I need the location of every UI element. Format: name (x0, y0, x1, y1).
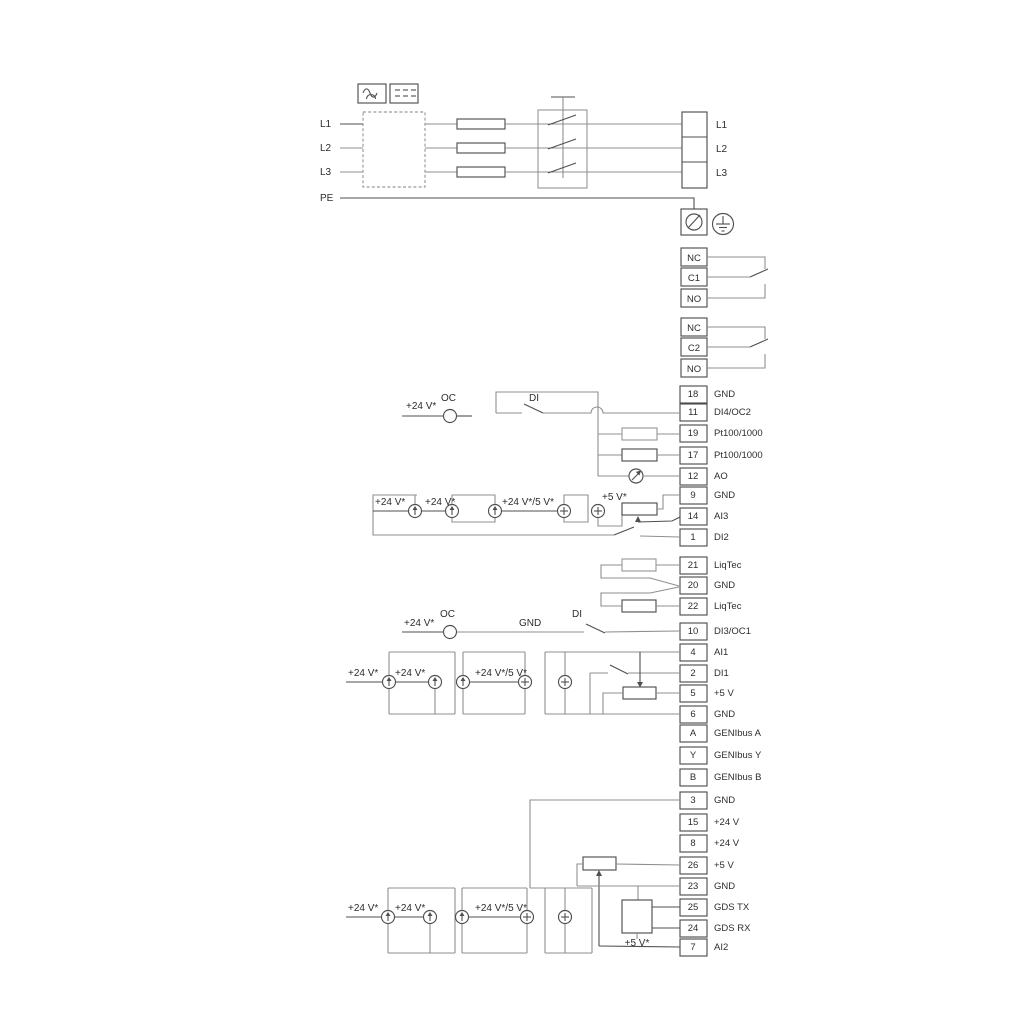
terminal-row: 20 GND (680, 577, 735, 594)
relay-terminal-label: NC (687, 253, 701, 264)
terminal-label: +24 V (714, 838, 740, 849)
di4-oc-branch: +24 V* OC (402, 393, 472, 423)
terminal-number: 2 (690, 668, 695, 679)
terminal-row: 23 GND (680, 878, 735, 895)
terminal-number: 1 (690, 532, 695, 543)
open-collector-icon (444, 410, 457, 423)
terminal-row: 25 GDS TX (680, 899, 750, 916)
relay-1: NC C1 NO (681, 248, 768, 307)
current-source-icon (456, 911, 469, 924)
voltage-label: +24 V*/5 V* (502, 497, 554, 508)
power-line-label: L1 (320, 119, 332, 130)
terminal-row: A GENIbus A (680, 725, 762, 742)
current-source-icon (429, 676, 442, 689)
terminal-number: 9 (690, 490, 695, 501)
terminal-label: +24 V (714, 817, 740, 828)
terminal-label: AI1 (714, 647, 728, 658)
di-label: DI (529, 393, 539, 404)
voltage-label: +24 V* (406, 401, 436, 412)
rcd-pulsating-dc-symbol (358, 84, 386, 103)
terminal-number: B (690, 772, 696, 783)
terminal-strip-io1: 18 GND 11 DI4/OC2 19 Pt100/1000 17 Pt100… (680, 386, 763, 546)
terminal-row: 15 +24 V (680, 814, 740, 831)
earth-icon (713, 214, 734, 235)
terminal-strip-io2: 10 DI3/OC1 4 AI1 2 DI1 5 +5 V 6 GND A GE… (680, 623, 762, 786)
terminal-number: 12 (688, 471, 699, 482)
current-source-icon (382, 911, 395, 924)
di-label: DI (572, 609, 582, 620)
terminal-row: Y GENIbus Y (680, 747, 762, 764)
current-source-icon (383, 676, 396, 689)
terminal-number: 25 (688, 902, 699, 913)
input-filter-box (363, 112, 425, 187)
wire (616, 864, 680, 865)
terminal-row: 26 +5 V (680, 857, 734, 874)
gnd-label: GND (519, 618, 541, 629)
power-line-label: L3 (320, 167, 332, 178)
wire (530, 800, 680, 888)
current-source-icon (424, 911, 437, 924)
wire (452, 518, 495, 522)
wire (603, 693, 623, 714)
terminal-row: 24 GDS RX (680, 920, 751, 937)
terminal-row: 7 AI2 (680, 939, 728, 956)
voltage-label: +5 V* (602, 492, 627, 503)
voltage-label: +24 V* (395, 903, 425, 914)
terminal-row: 14 AI3 (680, 508, 728, 525)
terminal-number: A (690, 728, 697, 739)
terminal-row: 6 GND (680, 706, 735, 723)
terminal-number: 8 (690, 838, 695, 849)
terminal-label: LiqTec (714, 560, 742, 571)
oc-label: OC (441, 393, 456, 404)
voltage-label: +24 V* (348, 668, 378, 679)
terminal-label: GENIbus A (714, 728, 762, 739)
fuse-symbol (457, 167, 505, 177)
resistor-symbol (622, 559, 656, 571)
terminal-label: AI3 (714, 511, 728, 522)
resistor-symbol (622, 428, 657, 440)
terminal-number: 23 (688, 881, 699, 892)
ai3-sensor-group: +24 V* +24 V* +24 V*/5 V* +5 V* (373, 492, 680, 537)
terminal-label: AI2 (714, 942, 728, 953)
current-source-icon (559, 676, 572, 689)
terminal-number: 14 (688, 511, 699, 522)
terminal-row: 17 Pt100/1000 (680, 447, 763, 464)
pt100-sensors (598, 428, 680, 461)
terminal-label: GENIbus B (714, 772, 762, 783)
terminal-number: 6 (690, 709, 695, 720)
terminal-label: GND (714, 709, 735, 720)
relay-contact-symbol (707, 327, 768, 368)
terminal-label: Pt100/1000 (714, 450, 763, 461)
terminal-number: 3 (690, 795, 695, 806)
voltage-label: +24 V* (375, 497, 405, 508)
current-source-icon (457, 676, 470, 689)
terminal-number: 19 (688, 428, 699, 439)
current-source-icon (446, 505, 459, 518)
wire (452, 495, 495, 504)
wiring-diagram: L1 L2 L3 PE (0, 0, 1024, 1024)
terminal-label: DI1 (714, 668, 729, 679)
terminal-number: 10 (688, 626, 699, 637)
relay-2: NC C2 NO (681, 318, 768, 377)
current-source-icon (559, 911, 572, 924)
current-source-icon (489, 505, 502, 518)
terminal-row: 4 AI1 (680, 644, 728, 661)
terminal-label: GND (714, 389, 735, 400)
terminal-row: 11 DI4/OC2 (680, 404, 751, 421)
current-source-icon (409, 505, 422, 518)
terminal-label: L1 (716, 120, 728, 131)
pe-wire (340, 198, 694, 209)
current-source-icon (519, 676, 532, 689)
terminal-number: 18 (688, 389, 699, 400)
terminal-label: AO (714, 471, 728, 482)
ai1-sensor-group: +24 V* +24 V* +24 V*/5 V* (346, 652, 680, 714)
gds-module-box (622, 900, 652, 933)
relay-terminal-label: NC (687, 323, 701, 334)
wire (577, 864, 583, 886)
current-source-icon (521, 911, 534, 924)
terminal-label: L2 (716, 144, 728, 155)
terminal-row: B GENIbus B (680, 769, 762, 786)
terminal-label: +5 V (714, 688, 734, 699)
terminal-number: 26 (688, 860, 699, 871)
pe-ground (340, 198, 734, 235)
terminal-number: 4 (690, 647, 695, 658)
terminal-number: 22 (688, 601, 699, 612)
terminal-row: 19 Pt100/1000 (680, 425, 763, 442)
potentiometer-symbol (583, 857, 616, 870)
terminal-block (682, 112, 707, 188)
ai2-sensor-group: +24 V* +24 V* +24 V*/5 V* (346, 800, 680, 953)
terminal-number: 17 (688, 450, 699, 461)
power-section: L1 L2 L3 PE (320, 84, 734, 235)
voltage-label: +24 V*/5 V* (475, 903, 527, 914)
voltage-label: +24 V*/5 V* (475, 668, 527, 679)
terminal-row: 2 DI1 (680, 665, 729, 682)
ai1-potentiometer (603, 652, 680, 714)
switch-blade (614, 527, 634, 535)
voltage-label: +24 V* (348, 903, 378, 914)
terminal-number: 24 (688, 923, 699, 934)
wiring-diagram-page: L1 L2 L3 PE (0, 0, 1024, 1024)
wire (640, 536, 680, 537)
terminal-label: DI2 (714, 532, 729, 543)
switch-blade (524, 404, 543, 413)
wiper-arrowhead (635, 516, 641, 522)
potentiometer-symbol (622, 503, 657, 515)
terminal-number: 15 (688, 817, 699, 828)
current-source-icon (558, 505, 571, 518)
terminal-label: LiqTec (714, 601, 742, 612)
terminal-label: GND (714, 580, 735, 591)
terminal-label: GDS TX (714, 902, 750, 913)
switch-blade (586, 624, 605, 633)
terminal-number: 7 (690, 942, 695, 953)
terminal-row: 10 DI3/OC1 (680, 623, 751, 640)
relay-terminal-label: C2 (688, 343, 700, 354)
current-source-icon (592, 505, 605, 518)
terminal-label: DI4/OC2 (714, 407, 751, 418)
terminal-row: 3 GND (680, 792, 735, 809)
terminal-label: GENIbus Y (714, 750, 762, 761)
wire (496, 392, 598, 476)
fuse-symbol (457, 119, 505, 129)
terminal-label: GND (714, 490, 735, 501)
relay-contact-symbol (707, 257, 768, 298)
terminal-strip-io3: 3 GND 15 +24 V 8 +24 V 26 +5 V 23 GND 25… (680, 792, 751, 956)
rcd-type-symbols (358, 84, 418, 103)
voltage-label: +24 V* (404, 618, 434, 629)
relay-terminal-label: NO (687, 294, 701, 305)
terminal-row: 12 AO (680, 468, 728, 485)
terminal-row: 21 LiqTec (680, 557, 742, 574)
wire (657, 495, 680, 509)
terminal-label: Pt100/1000 (714, 428, 763, 439)
terminal-number: 21 (688, 560, 699, 571)
wire (638, 517, 680, 522)
relay-terminal-label: C1 (688, 273, 700, 284)
terminal-row: 18 GND (680, 386, 735, 403)
terminal-number: 20 (688, 580, 699, 591)
terminal-label: GDS RX (714, 923, 751, 934)
terminal-row: 9 GND (680, 487, 735, 504)
wire (605, 631, 680, 632)
wiper-arrowhead (596, 870, 602, 876)
voltage-label: +5 V* (625, 938, 650, 949)
terminal-row: 5 +5 V (680, 685, 734, 702)
main-switch (538, 97, 587, 188)
terminal-label: GND (714, 795, 735, 806)
terminal-row: 8 +24 V (680, 835, 740, 852)
terminal-number: 11 (688, 407, 698, 418)
di3-oc-branch: +24 V* OC GND DI (402, 609, 680, 639)
terminal-row: 1 DI2 (680, 529, 729, 546)
open-collector-icon (444, 626, 457, 639)
power-line-label: PE (320, 193, 334, 204)
terminal-row: 22 LiqTec (680, 598, 742, 615)
oc-label: OC (440, 609, 455, 620)
mains-terminal-block: L1 L2 L3 (682, 112, 728, 188)
wire-with-jump (543, 407, 680, 413)
resistor-symbol (622, 600, 656, 612)
relay-terminal-label: NO (687, 364, 701, 375)
voltage-label: +24 V* (395, 668, 425, 679)
terminal-strip-liqtec: 21 LiqTec 20 GND 22 LiqTec (601, 557, 742, 615)
analog-output-meter (598, 469, 680, 483)
terminal-number: 5 (690, 688, 695, 699)
resistor-symbol (622, 449, 657, 461)
switch-blade (610, 665, 628, 674)
rcd-smooth-dc-symbol (390, 84, 418, 103)
fuse-symbol (457, 143, 505, 153)
power-line-label: L2 (320, 143, 332, 154)
terminal-label: L3 (716, 168, 728, 179)
terminal-label: GND (714, 881, 735, 892)
terminal-label: +5 V (714, 860, 734, 871)
terminal-number: Y (690, 750, 697, 761)
liqtec-sensor-circuit (601, 559, 680, 612)
potentiometer-symbol (623, 687, 656, 699)
terminal-label: DI3/OC1 (714, 626, 751, 637)
